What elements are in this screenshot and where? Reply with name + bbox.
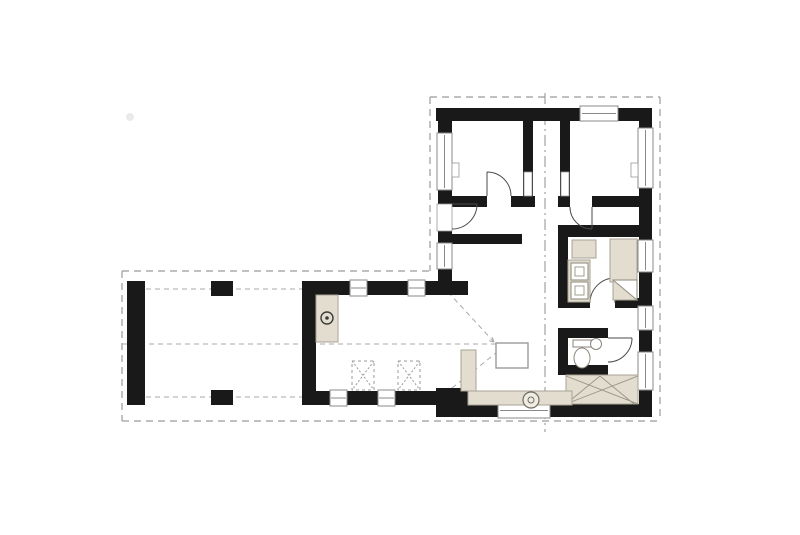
faint-print-mark — [126, 113, 134, 121]
window-sill-mark — [631, 163, 638, 177]
hall-stub-wall — [450, 234, 522, 244]
terrace-left-wall — [127, 281, 145, 405]
bath-shelf — [572, 240, 596, 258]
bedroom-south-wall-a — [452, 196, 487, 207]
closet-jamb-left — [524, 172, 532, 196]
roof-valley-line-1 — [448, 292, 494, 342]
kitchen-west-wall — [302, 281, 316, 405]
bathroom-north-wall — [558, 225, 652, 237]
toilet-tank — [573, 340, 591, 347]
cooktop-knob-icon — [325, 316, 329, 320]
terrace-post-bottom — [211, 390, 233, 405]
bedroom-south-wall-c — [558, 196, 570, 207]
entry-door-opening — [437, 204, 452, 231]
closet-jamb-right — [561, 172, 569, 196]
kitchen-north-wall — [302, 281, 468, 295]
kitchen-south-wall — [302, 391, 452, 405]
hand-basin — [591, 339, 602, 350]
table-symbol-1 — [352, 361, 374, 390]
washbasin-2 — [571, 282, 588, 299]
chimney — [496, 343, 528, 368]
door-wc — [608, 338, 632, 362]
table-symbol-2 — [398, 361, 420, 390]
floor-plan-page — [0, 0, 800, 535]
door-bedroom1 — [487, 172, 511, 196]
bedroom2-south-wall — [592, 196, 652, 207]
terrace-post-top — [211, 281, 233, 296]
window-sill-mark — [452, 163, 459, 177]
fixtures — [316, 239, 638, 408]
toilet-bowl — [574, 348, 590, 368]
washbasin-1 — [571, 263, 588, 280]
bedroom-south-wall-b — [511, 196, 535, 207]
door-entry-west — [452, 204, 477, 229]
stove-icon — [523, 392, 539, 408]
sideboard — [461, 350, 476, 391]
north-wall — [436, 108, 652, 121]
bathroom-west-wall — [558, 237, 568, 308]
floor-plan-canvas — [0, 0, 800, 535]
bathtub — [610, 239, 637, 282]
bench-hearth — [468, 391, 572, 405]
